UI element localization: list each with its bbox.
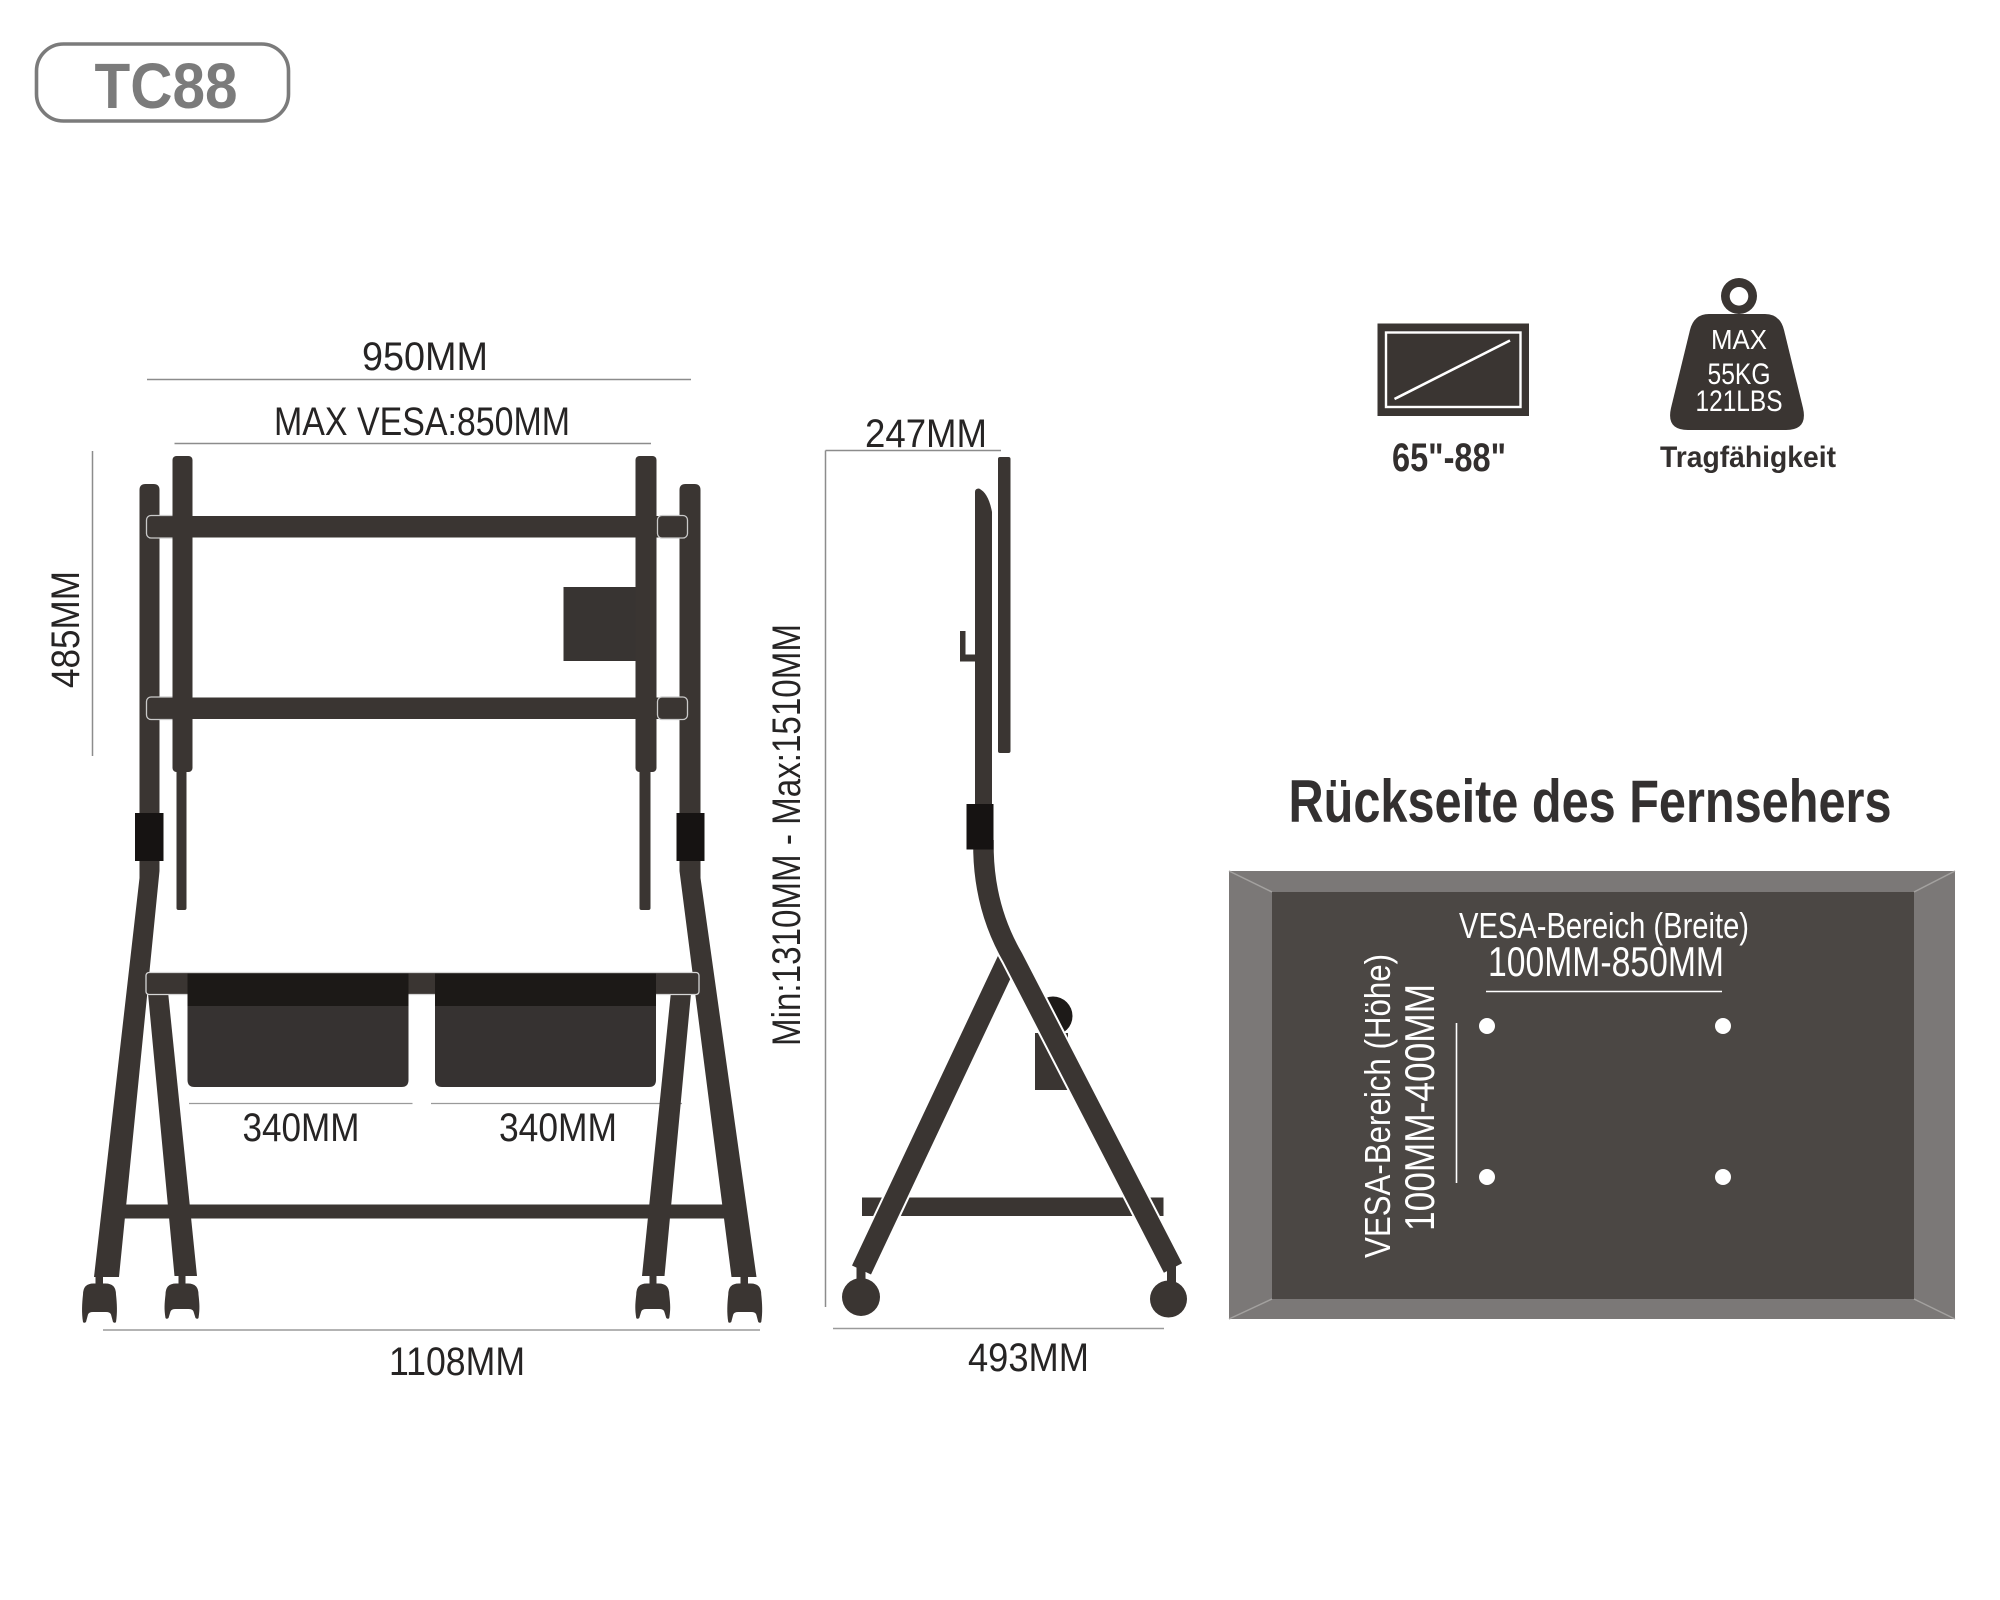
svg-text:Min:1310MM - Max:1510MM: Min:1310MM - Max:1510MM bbox=[765, 624, 809, 1046]
svg-text:Tragfähigkeit: Tragfähigkeit bbox=[1660, 441, 1836, 474]
svg-text:VESA-Bereich (Höhe): VESA-Bereich (Höhe) bbox=[1357, 954, 1398, 1258]
svg-text:100MM-850MM: 100MM-850MM bbox=[1488, 938, 1724, 985]
svg-text:121LBS: 121LBS bbox=[1696, 385, 1783, 418]
svg-text:247MM: 247MM bbox=[865, 412, 987, 456]
svg-text:340MM: 340MM bbox=[243, 1106, 360, 1150]
svg-text:TC88: TC88 bbox=[95, 50, 238, 122]
svg-text:MAX VESA:850MM: MAX VESA:850MM bbox=[274, 400, 570, 444]
svg-text:950MM: 950MM bbox=[362, 335, 488, 379]
svg-text:1108MM: 1108MM bbox=[389, 1340, 525, 1384]
svg-text:MAX: MAX bbox=[1711, 324, 1767, 355]
svg-text:340MM: 340MM bbox=[499, 1106, 617, 1150]
svg-text:100MM-400MM: 100MM-400MM bbox=[1396, 984, 1443, 1231]
svg-text:65"-88": 65"-88" bbox=[1392, 436, 1506, 480]
svg-text:493MM: 493MM bbox=[968, 1336, 1089, 1380]
svg-text:Rückseite des Fernsehers: Rückseite des Fernsehers bbox=[1289, 768, 1892, 835]
svg-text:485MM: 485MM bbox=[44, 571, 88, 688]
